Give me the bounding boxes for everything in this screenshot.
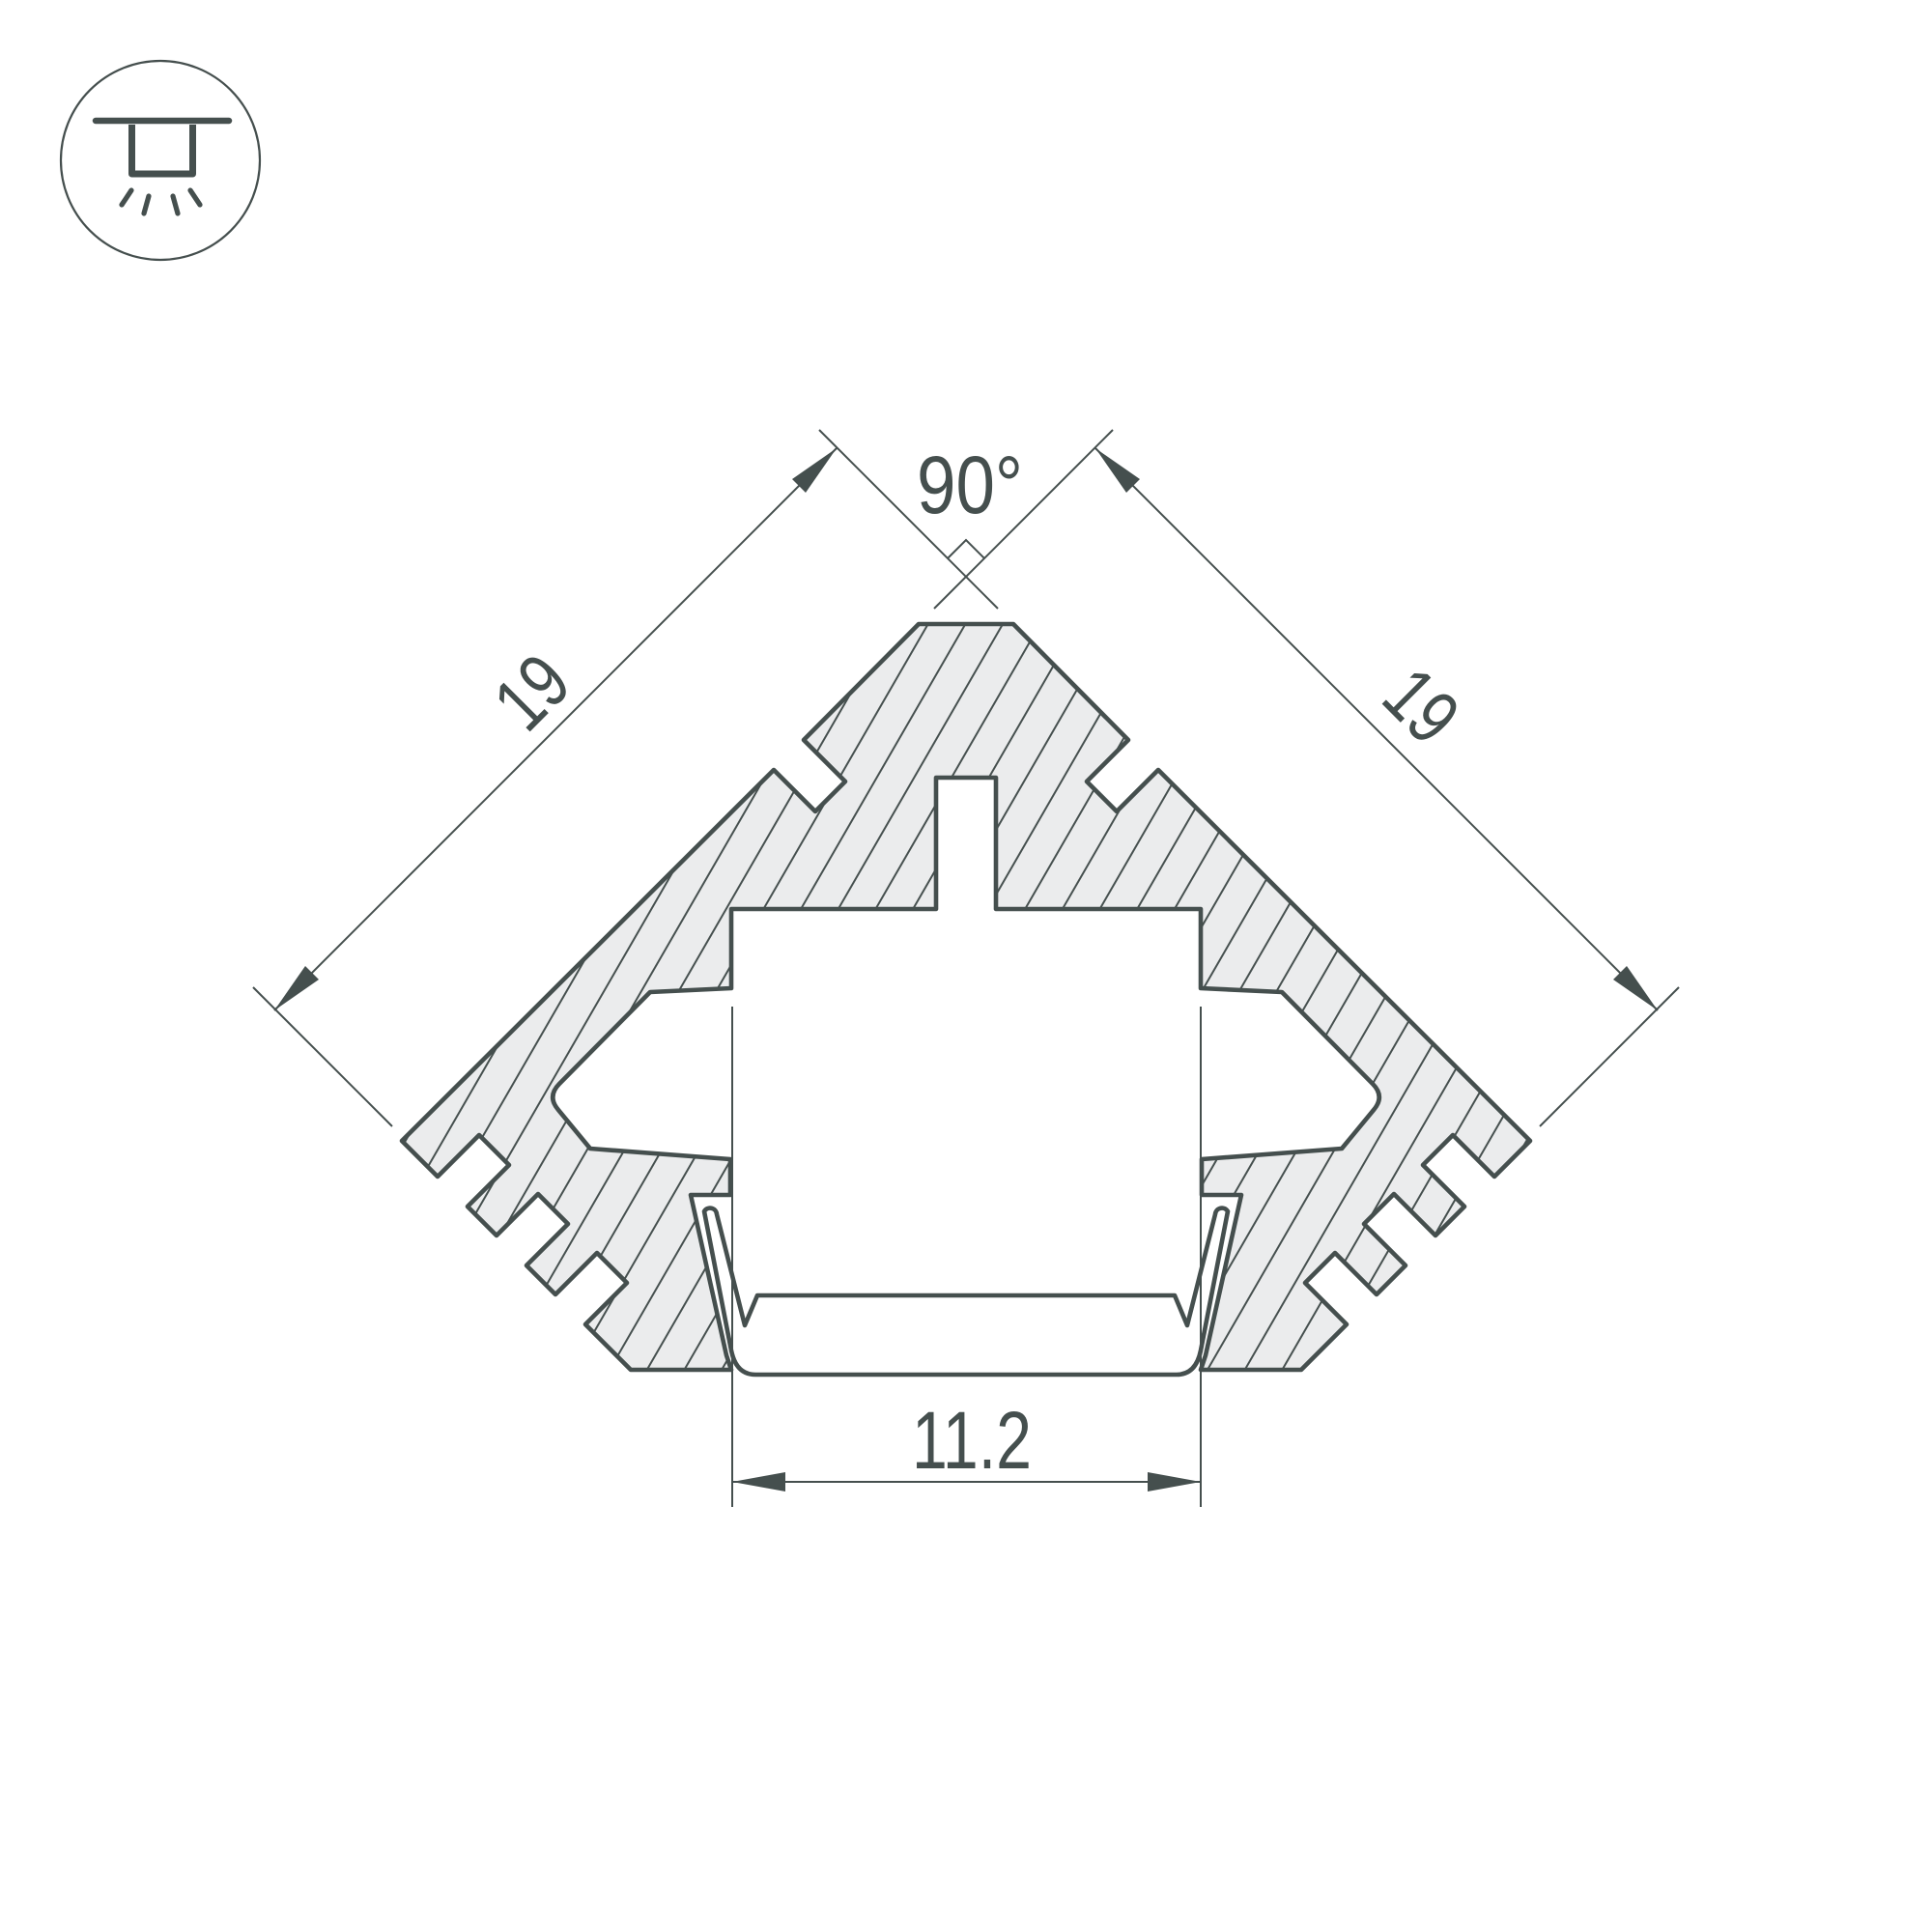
svg-text:11.2: 11.2 — [912, 1395, 1032, 1486]
svg-text:90°: 90° — [917, 440, 1023, 530]
